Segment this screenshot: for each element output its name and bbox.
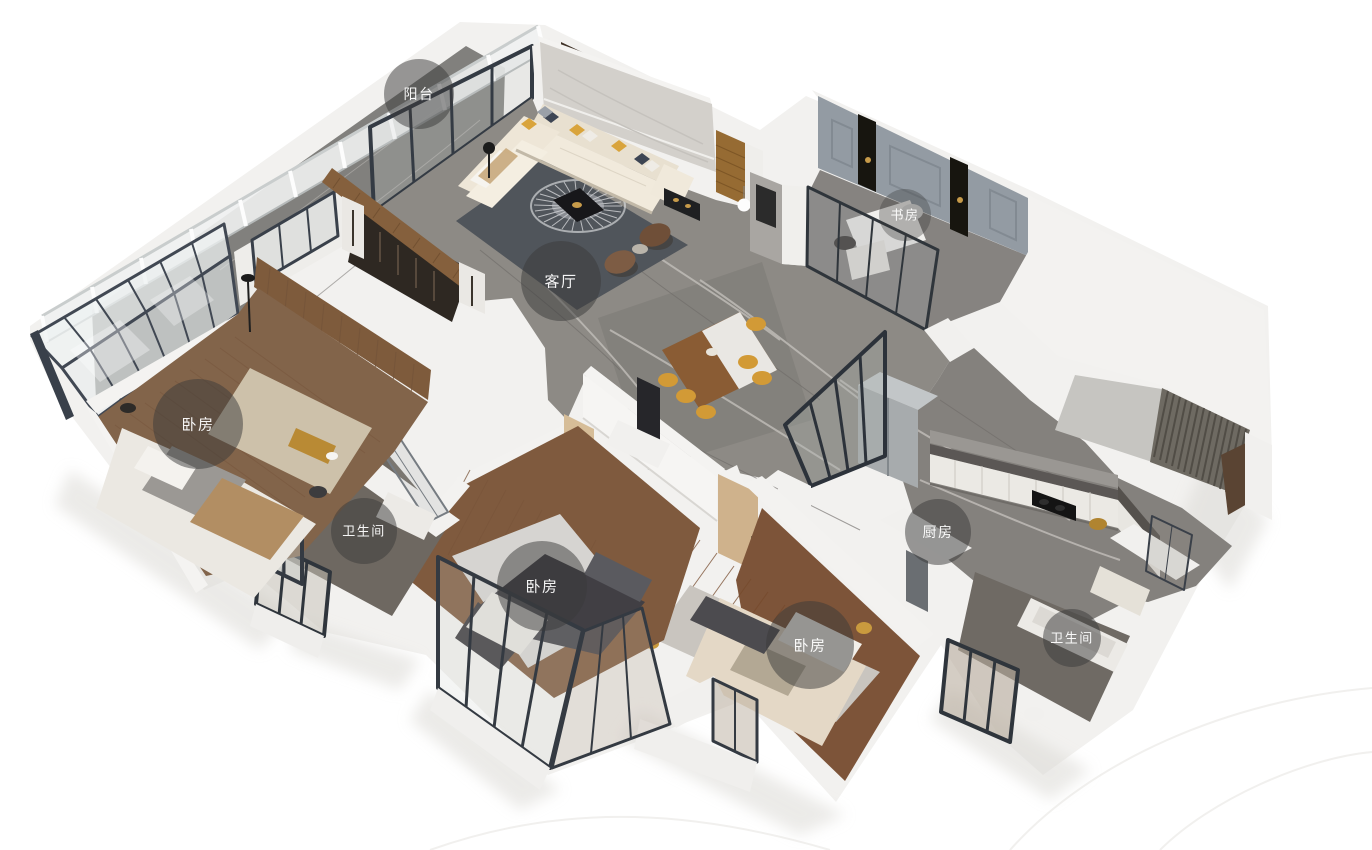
svg-text:卧房: 卧房 <box>793 637 826 654</box>
svg-text:书房: 书房 <box>890 208 919 223</box>
svg-text:卫生间: 卫生间 <box>342 524 386 539</box>
svg-text:客厅: 客厅 <box>544 273 577 290</box>
svg-text:卫生间: 卫生间 <box>1050 631 1094 646</box>
svg-text:卧房: 卧房 <box>525 578 558 595</box>
svg-text:厨房: 厨房 <box>923 524 954 540</box>
svg-text:阳台: 阳台 <box>404 86 435 102</box>
svg-text:卧房: 卧房 <box>181 416 214 433</box>
